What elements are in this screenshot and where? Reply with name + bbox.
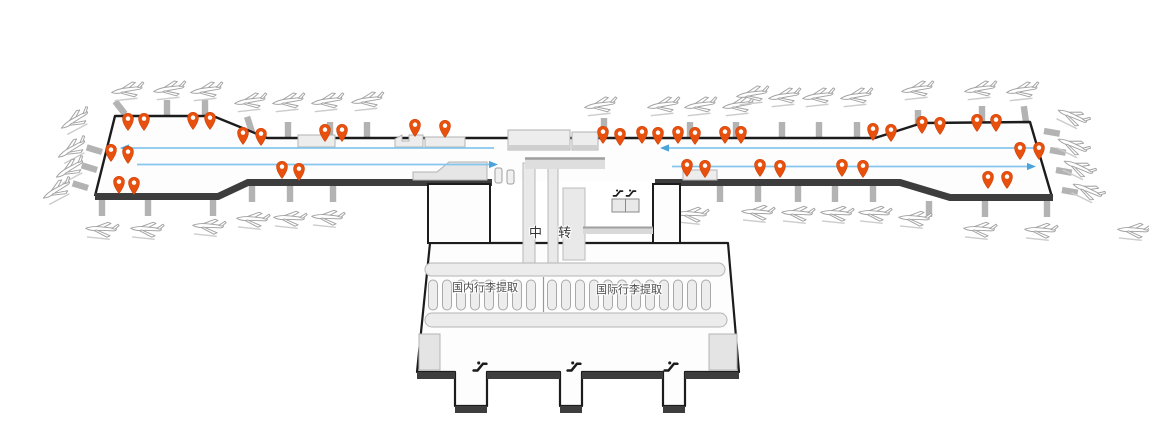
jet-bridge [779,122,785,138]
jet-bridge [870,186,876,202]
airplane-icon [1055,132,1092,161]
airplane-icon [311,92,346,112]
transfer-corridor-right [548,167,558,263]
jet-bridge [145,200,151,216]
airplane-icon [39,175,76,205]
airplane-icon [111,81,146,101]
airplane-icon [272,92,307,112]
jet-bridge [364,122,370,138]
airplane-icon [963,220,998,240]
transfer-label: 中 转 [529,222,577,241]
gate-building-base [573,145,597,150]
baggage-carousel [674,280,683,310]
airplane-icon [273,209,308,229]
baggage-carousel [527,280,536,310]
gate-building [425,137,465,147]
jet-bridge [86,144,103,155]
baggage-hall-top-band [425,263,725,276]
stair-block-2 [507,170,514,184]
airplane-icon [741,203,776,223]
jet-bridge [832,186,838,202]
baggage-carousel [429,280,438,310]
stair-block-1 [495,168,502,183]
airplane-icon [1055,103,1092,132]
jet-bridge [1021,106,1030,123]
jet-bridge [1043,128,1060,137]
jet-bridge [816,122,822,138]
jet-bridge [99,200,105,216]
jet-bridge [1055,167,1072,176]
jet-bridge [287,186,293,202]
airplane-icon [311,208,346,228]
jet-bridge [210,200,216,216]
left-pier-block [428,184,490,243]
gate-building [395,135,423,147]
jet-bridge [982,201,988,217]
corner-pier-right [709,334,737,370]
airplane-icon [130,220,165,240]
gate-building-base [509,145,569,150]
airplane-icon [858,204,893,224]
airplane-icon [964,80,999,100]
gate-building [298,135,335,147]
airplane-icon [351,91,386,111]
jet-bridge [330,186,336,202]
airplane-icon [57,105,94,135]
gate-pin[interactable] [410,119,421,136]
gate-pin[interactable] [440,120,451,137]
jet-bridge [1044,201,1050,217]
international-baggage-label: 国际行李提取 [596,281,662,297]
jet-bridge [164,100,170,116]
airplane-icon [236,210,271,230]
airplane-icon [153,80,188,100]
airplane-icon [684,96,719,116]
jet-bridge [72,180,89,191]
airplane-icon [901,80,936,100]
airplane-icon [768,87,803,107]
baggage-carousel [562,280,571,310]
jet-bridge [717,186,723,202]
airplane-icon [781,204,816,224]
airplane-icon [647,96,682,116]
airport-terminal-map: 中 转 国内行李提取 国际行李提取 [0,0,1149,445]
airplane-icon [820,204,855,224]
airplane-icon [192,217,227,237]
baggage-carousel [443,280,452,310]
jet-bridge [854,122,860,138]
jet-bridge [795,186,801,202]
right-pier-block [653,184,680,243]
transfer-corridor-left [523,163,535,263]
jet-bridge [285,122,291,138]
baggage-carousel [548,280,557,310]
corner-pier-left [419,334,440,370]
airplane-icon [1006,81,1041,101]
baggage-carousel [576,280,585,310]
airplane-icon [52,154,89,184]
airplane-icon [802,87,837,107]
baggage-carousel [688,280,697,310]
jet-bridge [755,186,761,202]
airplane-icon [1117,221,1149,241]
baggage-carousel [702,280,711,310]
jet-bridge [113,99,128,116]
airplane-icon [190,81,225,101]
airplane-icon [584,96,619,116]
escalator-icon [627,189,636,195]
jet-bridge [81,162,98,173]
domestic-baggage-label: 国内行李提取 [452,279,518,295]
airplane-icon [840,87,875,107]
airplane-icon [85,220,120,240]
airplane-icon [1061,154,1098,183]
escalator-icon [614,189,623,195]
jet-bridge [249,186,255,202]
airplane-icon [1024,221,1059,241]
baggage-hall-bottom-band [425,313,727,327]
airplane-icon [234,92,269,112]
